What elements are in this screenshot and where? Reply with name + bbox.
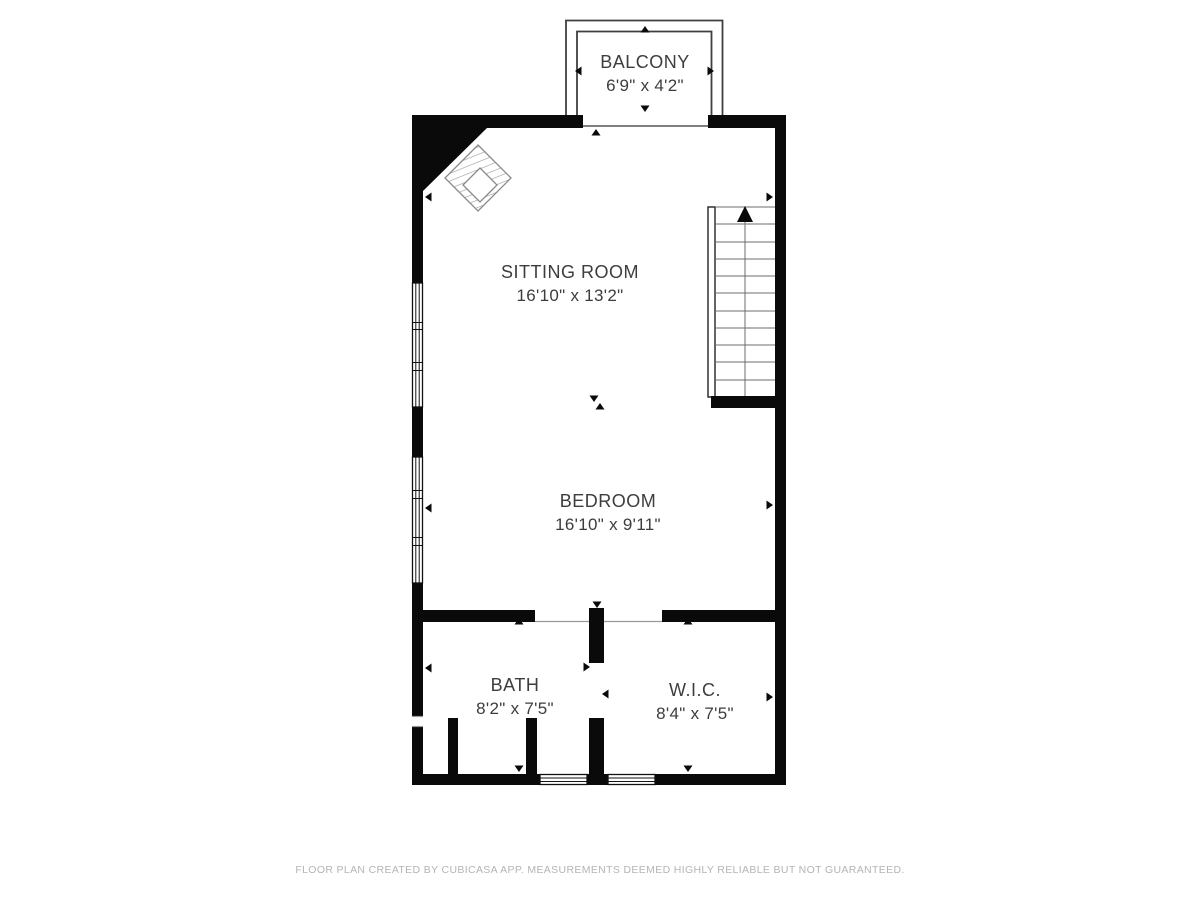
balcony-dimensions: 6'9" x 4'2" [606, 76, 684, 95]
arrow-up-icon [641, 26, 650, 33]
arrow-down-icon [590, 396, 599, 403]
top-wall-right-segment [708, 115, 786, 128]
balcony-railing-inner [577, 32, 712, 116]
left-wall-bottom [412, 726, 423, 774]
staircase [708, 206, 775, 408]
sitting-room: SITTING ROOM 16'10" x 13'2" [425, 129, 773, 402]
arrow-left-icon [425, 504, 432, 513]
arrow-left-icon [425, 193, 432, 202]
stairs-up-arrow-icon [737, 206, 753, 222]
window [413, 283, 423, 407]
wic-label: W.I.C. [669, 680, 721, 700]
top-wall-left-segment [412, 115, 583, 128]
arrow-down-icon [515, 766, 524, 773]
arrow-down-icon [684, 766, 693, 773]
sitting-room-dimensions: 16'10" x 13'2" [517, 286, 624, 305]
arrow-up-icon [596, 403, 605, 410]
walk-in-closet: W.I.C. 8'4" x 7'5" [602, 618, 773, 772]
arrow-right-icon [767, 693, 774, 702]
right-wall [775, 115, 786, 785]
arrow-left-icon [425, 664, 432, 673]
balcony-label: BALCONY [600, 52, 690, 72]
bath-dimensions: 8'2" x 7'5" [476, 699, 554, 718]
wic-dimensions: 8'4" x 7'5" [656, 704, 734, 723]
bath-label: BATH [491, 675, 540, 695]
arrow-right-icon [584, 663, 591, 672]
shower-wall-stub-left [448, 718, 458, 774]
wic-bedroom-wall [662, 610, 775, 622]
shower-wall-stub-right [526, 718, 537, 774]
arrow-right-icon [767, 501, 774, 510]
bath-wic-divider-upper [589, 608, 604, 663]
wic-window [608, 775, 655, 785]
footer-disclaimer: FLOOR PLAN CREATED BY CUBICASA APP. MEAS… [295, 864, 904, 876]
sitting-room-label: SITTING ROOM [501, 262, 639, 282]
floor-plan-page: BALCONY 6'9" x 4'2" SITTING ROOM 16'10" … [0, 0, 1200, 900]
stair-handrail [708, 207, 715, 397]
bottom-wall [412, 774, 786, 785]
bedroom: BEDROOM 16'10" x 9'11" [425, 403, 773, 608]
arrow-up-icon [592, 129, 601, 136]
bath-window [540, 775, 587, 785]
stair-base-wall [711, 396, 775, 408]
left-wall-upper [412, 115, 423, 283]
window [413, 457, 423, 583]
exterior-walls [412, 115, 786, 785]
left-wall-mid [412, 407, 423, 457]
bedroom-dimensions: 16'10" x 9'11" [555, 515, 661, 534]
bedroom-label: BEDROOM [560, 491, 657, 511]
left-wall-lower [412, 583, 423, 716]
interior-walls [423, 608, 775, 774]
arrow-left-icon [602, 690, 609, 699]
balcony: BALCONY 6'9" x 4'2" [566, 21, 723, 127]
arrow-left-icon [575, 67, 582, 76]
floor-plan-canvas: BALCONY 6'9" x 4'2" SITTING ROOM 16'10" … [0, 0, 1200, 900]
bath-wic-divider-lower [589, 718, 604, 774]
arrow-down-icon [641, 106, 650, 113]
arrow-down-icon [593, 602, 602, 609]
arrow-right-icon [767, 193, 774, 202]
